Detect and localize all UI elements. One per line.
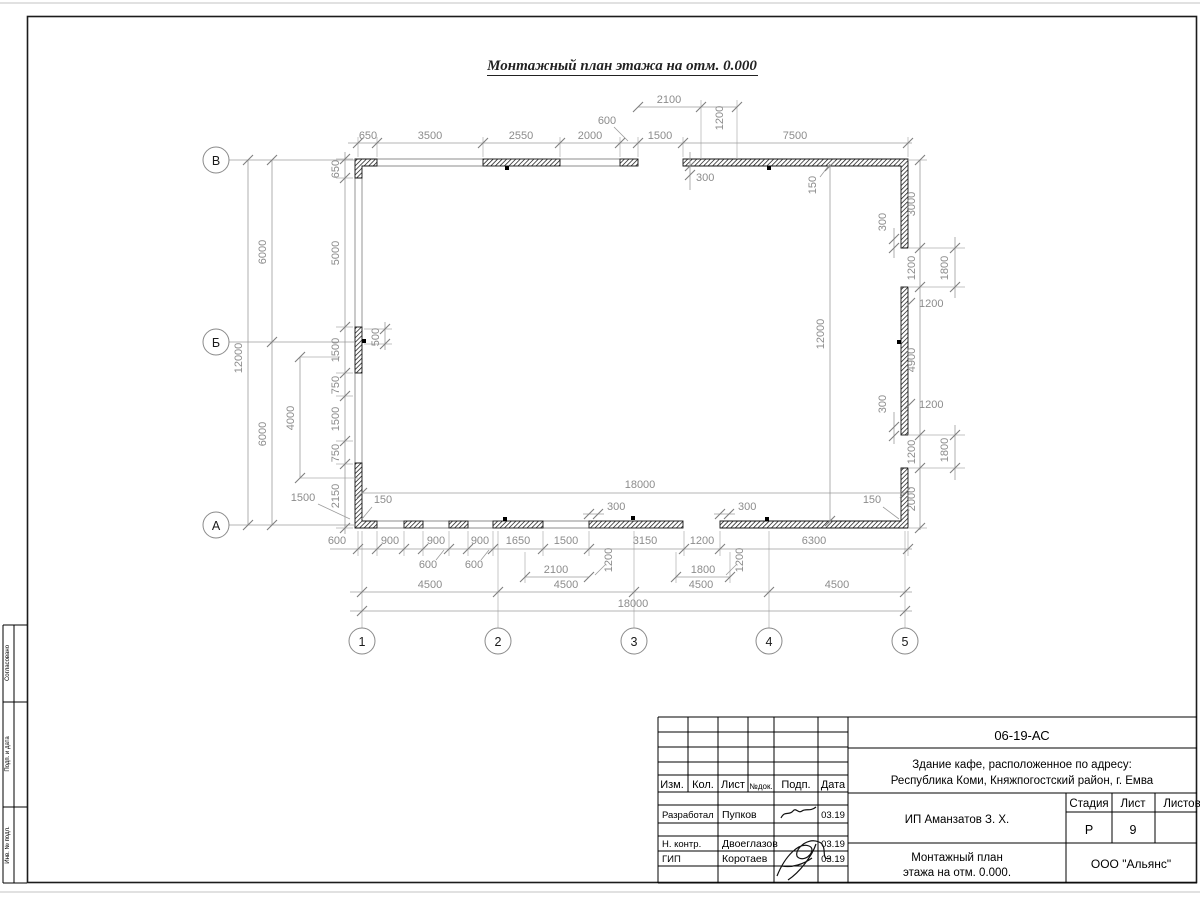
dim-label: 150: [863, 494, 881, 506]
stage-header: Стадия: [1069, 798, 1108, 810]
dim-label: 18000: [625, 479, 656, 491]
sheet-title-line1: Монтажный план: [911, 852, 1003, 864]
dim-label: 1650: [506, 535, 530, 547]
floor-plan: 650 3500 2550 2000 1500 7500 600 2100 12…: [203, 94, 965, 654]
dim-label: 5000: [330, 241, 342, 265]
dim-label: 3500: [418, 130, 442, 142]
margin-label: Согласовано: [5, 644, 11, 681]
dim-label: 900: [381, 535, 399, 547]
axis-label: 2: [495, 635, 502, 649]
organization-name: ООО "Альянс": [1091, 857, 1171, 871]
dim-label: 4500: [418, 579, 442, 591]
wall-outline: [355, 159, 620, 528]
sheet-header: Лист: [1121, 798, 1147, 810]
dim-label: 4500: [825, 579, 849, 591]
dim-label: 2000: [578, 130, 602, 142]
signer-role: Н. контр.: [662, 839, 701, 850]
dim-label: 150: [807, 176, 819, 194]
dim-label: 1200: [919, 298, 943, 310]
dim-label: 4500: [689, 579, 713, 591]
dim-label: 4000: [285, 406, 297, 430]
dim-label: 7500: [783, 130, 807, 142]
axis-label: А: [212, 519, 221, 533]
client-name: ИП Аманзатов З. Х.: [905, 814, 1010, 826]
dim-label: 600: [419, 559, 437, 571]
dim-label: 1800: [939, 256, 951, 280]
col-header: Лист: [721, 779, 745, 791]
dim-label: 1500: [330, 407, 342, 431]
dim-label: 18000: [618, 598, 649, 610]
stage-table: Стадия Лист Листов Р 9: [1069, 798, 1200, 837]
dim-label: 1500: [291, 492, 315, 504]
axis-bubbles: 1 2 3 4 5 В Б А: [203, 147, 918, 654]
stage-value: Р: [1085, 823, 1093, 837]
dim-label: 750: [330, 444, 342, 462]
dim-label: 2000: [906, 487, 918, 511]
margin-label: Инв. № подл.: [4, 826, 11, 864]
signer-name: Коротаев: [722, 853, 768, 865]
sheet-frame: [28, 17, 1197, 883]
dim-label: 3150: [633, 535, 657, 547]
dim-label: 1200: [906, 256, 918, 280]
axis-label: 3: [631, 635, 638, 649]
dim-label: 4900: [906, 348, 918, 372]
dim-label: 1200: [919, 399, 943, 411]
signers: Разработал Пупков 03.19 Н. контр. Двоегл…: [662, 807, 845, 880]
drawing-title: Монтажный план этажа на отм. 0.000: [486, 58, 758, 76]
dim-label: 6000: [257, 240, 269, 264]
dim-label: 1500: [554, 535, 578, 547]
dim-label: 650: [359, 130, 377, 142]
dim-label: 2150: [330, 484, 342, 508]
project-name-line1: Здание кафе, расположенное по адресу:: [912, 759, 1132, 771]
signer-role: Разработал: [662, 810, 714, 821]
dim-label: 1800: [939, 438, 951, 462]
dim-label: 650: [330, 160, 342, 178]
dimensions-right: 3000 1200 1800 1200 4900 300 1200 1200 1…: [877, 192, 951, 511]
sheets-header: Листов: [1163, 798, 1200, 810]
dim-label: 6300: [802, 535, 826, 547]
dim-label: 6000: [257, 422, 269, 446]
signer-name: Пупков: [722, 809, 757, 821]
signer-name: Двоеглазов: [722, 838, 778, 850]
dim-label: 2100: [544, 564, 568, 576]
dim-label: 300: [607, 501, 625, 513]
sheet-number: 9: [1130, 823, 1137, 837]
margin-label: Подп. и дата: [5, 736, 11, 772]
dim-label: 1500: [648, 130, 672, 142]
dim-label: 1200: [714, 106, 726, 130]
page-title: Монтажный план этажа на отм. 0.000: [486, 58, 757, 74]
dimension-ticks: [243, 102, 960, 616]
signature: [781, 807, 816, 818]
sheet-title-line2: этажа на отм. 0.000.: [903, 867, 1011, 879]
dim-label: 600: [465, 559, 483, 571]
dim-label: 12000: [815, 319, 827, 350]
axis-label: 5: [902, 635, 909, 649]
dim-label: 1200: [603, 548, 615, 572]
project-name-line2: Республика Коми, Княжпогостский район, г…: [891, 775, 1154, 787]
dim-label: 600: [598, 115, 616, 127]
dim-label: 1200: [906, 440, 918, 464]
dim-label: 3000: [906, 192, 918, 216]
dim-label: 1500: [330, 338, 342, 362]
col-header: Изм.: [660, 779, 684, 791]
dim-label: 12000: [233, 343, 245, 374]
sign-date: 03.19: [821, 839, 845, 850]
doc-number: 06-19-АС: [994, 728, 1049, 743]
title-block: 06-19-АС Здание кафе, расположенное по а…: [658, 717, 1200, 883]
axis-label: 1: [359, 635, 366, 649]
axis-label: В: [212, 154, 220, 168]
dim-label: 150: [374, 494, 392, 506]
col-header: №док.: [749, 782, 772, 791]
dim-label: 4500: [554, 579, 578, 591]
dim-label: 300: [877, 213, 889, 231]
signer-role: ГИП: [662, 854, 681, 865]
dim-label: 600: [328, 535, 346, 547]
dim-label: 300: [877, 395, 889, 413]
drawing-sheet: Согласовано Подп. и дата Инв. № подл. Мо…: [0, 0, 1200, 900]
col-header: Кол.: [692, 779, 714, 791]
col-header: Дата: [821, 779, 846, 791]
axis-label: 4: [766, 635, 773, 649]
axis-label: Б: [212, 336, 220, 350]
dim-label: 500: [370, 328, 382, 346]
dim-label: 1800: [691, 564, 715, 576]
col-header: Подп.: [781, 779, 810, 791]
dimensions-inner: 18000 150 300 300 150 12000: [374, 319, 881, 513]
dim-label: 300: [738, 501, 756, 513]
margin-boxes: Согласовано Подп. и дата Инв. № подл.: [3, 625, 27, 883]
dim-label: 2100: [657, 94, 681, 106]
sign-date: 03.19: [821, 810, 845, 821]
dim-label: 1200: [690, 535, 714, 547]
dim-label: 750: [330, 376, 342, 394]
dim-label: 1200: [734, 548, 746, 572]
dim-label: 900: [471, 535, 489, 547]
dim-label: 300: [696, 172, 714, 184]
drawing-canvas: Согласовано Подп. и дата Инв. № подл. Мо…: [0, 0, 1200, 900]
dim-label: 2550: [509, 130, 533, 142]
dim-label: 900: [427, 535, 445, 547]
